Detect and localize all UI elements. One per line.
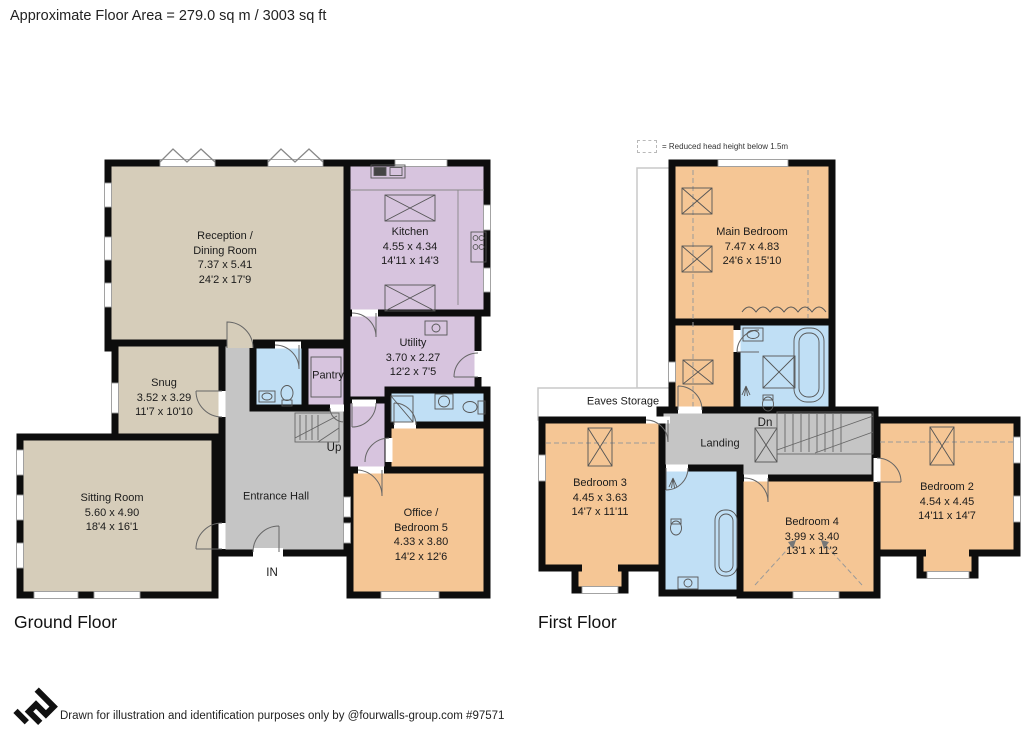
eaves-storage-outline	[538, 168, 672, 420]
stairs-down-label: Dn	[758, 417, 773, 429]
ground-floor-plan: Reception / Dining Room 7.37 x 5.41 24'2…	[8, 145, 508, 615]
entrance-in-label: IN	[266, 567, 278, 579]
room-label-kitchen: Kitchen 4.55 x 4.34 14'11 x 14'3	[381, 225, 439, 269]
room-label-entrance-hall: Entrance Hall	[243, 490, 309, 505]
fourwalls-logo	[12, 686, 60, 740]
first-floor-drawing	[530, 140, 1024, 610]
room-label-eaves-storage: Eaves Storage	[587, 395, 659, 410]
stairs-up-label: Up	[327, 442, 342, 454]
room-corridor	[672, 322, 737, 415]
reduced-head-height-legend: = Reduced head height below 1.5m	[637, 140, 788, 153]
room-wc	[253, 345, 305, 408]
room-lobby	[388, 425, 487, 470]
floorplan-page: Approximate Floor Area = 279.0 sq m / 30…	[0, 0, 1024, 740]
room-corridor	[347, 400, 391, 470]
footer-disclaimer: Drawn for illustration and identificatio…	[60, 710, 504, 722]
room-label-bedroom3: Bedroom 3 4.45 x 3.63 14'7 x 11'11	[571, 476, 628, 520]
room-label-utility: Utility 3.70 x 2.27 12'2 x 7'5	[386, 336, 440, 380]
dashed-area-icon	[637, 140, 657, 153]
room-label-office: Office / Bedroom 5 4.33 x 3.80 14'2 x 12…	[394, 506, 448, 564]
ground-floor-title: Ground Floor	[14, 612, 117, 633]
room-ensuite	[737, 322, 832, 415]
room-label-bedroom4: Bedroom 4 3.99 x 3.40 13'1 x 11'2	[785, 515, 839, 559]
page-title: Approximate Floor Area = 279.0 sq m / 30…	[10, 8, 326, 24]
room-label-bedroom2: Bedroom 2 4.54 x 4.45 14'11 x 14'7	[918, 480, 976, 524]
room-shower	[388, 390, 487, 425]
first-floor-plan: = Reduced head height below 1.5m Main Be…	[530, 140, 1024, 610]
room-label-main-bedroom: Main Bedroom 7.47 x 4.83 24'6 x 15'10	[716, 225, 788, 269]
legend-text: = Reduced head height below 1.5m	[662, 142, 788, 151]
room-label-reception: Reception / Dining Room 7.37 x 5.41 24'2…	[193, 229, 257, 287]
first-floor-title: First Floor	[538, 612, 617, 633]
room-label-snug: Snug 3.52 x 3.29 11'7 x 10'10	[135, 376, 193, 420]
room-bathroom	[662, 468, 740, 593]
room-label-sitting-room: Sitting Room 5.60 x 4.90 18'4 x 16'1	[81, 491, 144, 535]
room-label-landing: Landing	[700, 437, 739, 452]
room-label-pantry: Pantry	[312, 369, 344, 384]
